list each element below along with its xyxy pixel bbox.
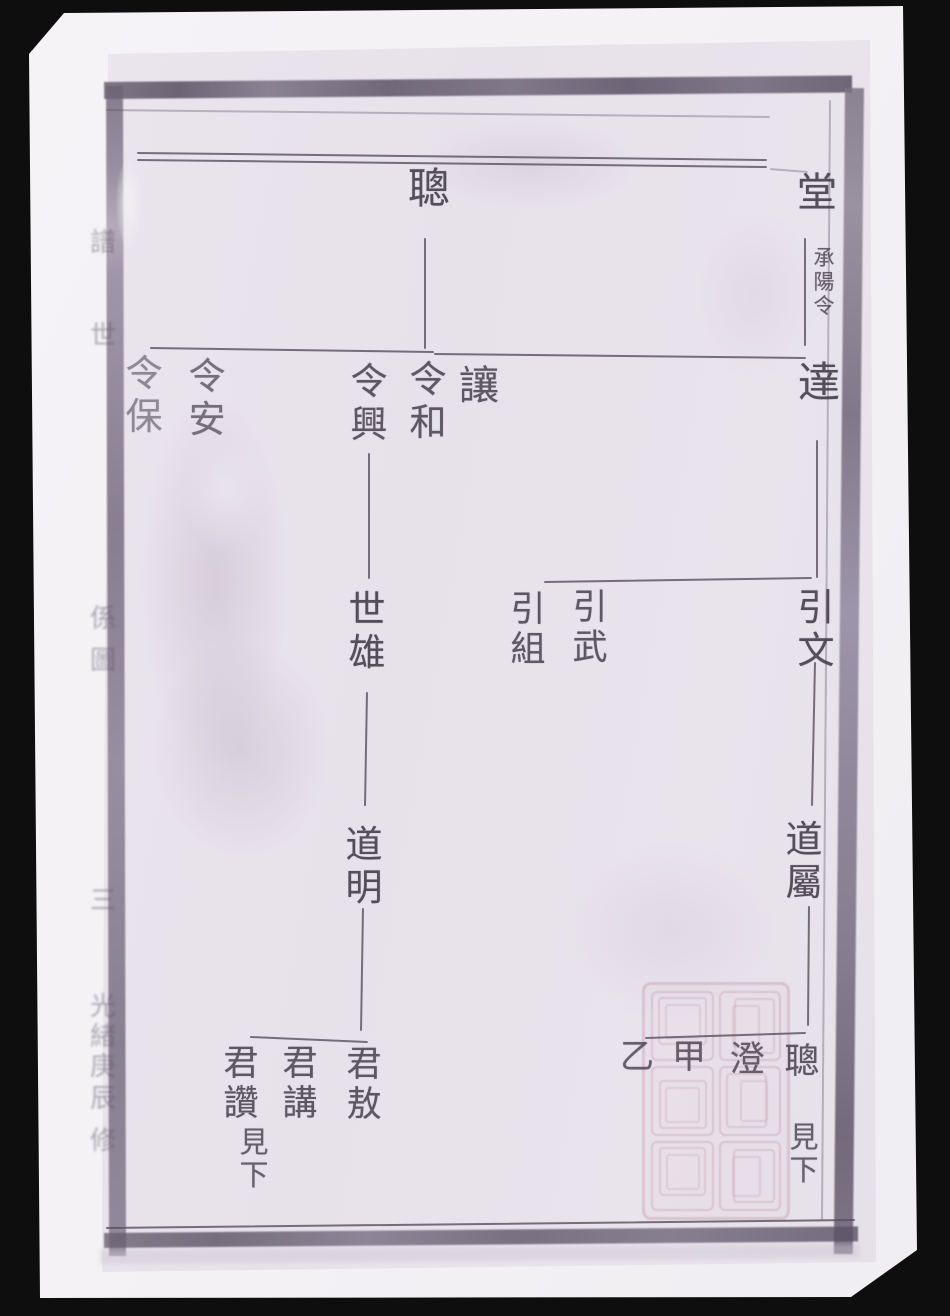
tree-node-cheng: 澄 bbox=[728, 1040, 766, 1080]
seal-glyph-cell bbox=[719, 1141, 782, 1211]
tree-node-yi: 乙 bbox=[619, 1038, 655, 1077]
tree-node-jun-zan: 君讚 bbox=[222, 1044, 260, 1125]
tree-node-jun-jiang: 君講 bbox=[281, 1044, 319, 1125]
tree-node-dao-shu: 道屬 bbox=[784, 820, 824, 905]
left-edge-partial-char: 譜 bbox=[88, 222, 118, 259]
tree-line-v-lingxing-down bbox=[368, 453, 370, 579]
tree-node-ling-an: 令安 bbox=[187, 357, 227, 442]
tree-node-note-chengyangling: 承陽令 bbox=[812, 246, 836, 318]
tree-node-see-below-left: 見下 bbox=[238, 1127, 270, 1194]
tree-node-rang: 讓 bbox=[458, 363, 500, 409]
tree-node-tang: 堂 bbox=[795, 170, 839, 216]
tree-node-ling-bao: 令保 bbox=[124, 354, 164, 439]
tree-node-ling-he: 令和 bbox=[408, 360, 448, 445]
tree-node-yin-zu: 引組 bbox=[509, 590, 547, 671]
scan-background: 聰堂承陽令達讓令和令興令安令保引文引武引組世雄道明道屬君敖君講君讚見下聰澄甲乙見… bbox=[0, 0, 950, 1316]
tree-node-yin-wen: 引文 bbox=[796, 588, 836, 673]
tree-line-v-cong-top bbox=[424, 238, 426, 349]
tree-node-ling-xing: 令興 bbox=[349, 362, 389, 447]
tree-node-cong-bottom: 聰 bbox=[783, 1042, 821, 1082]
left-edge-partial-char: 修 bbox=[88, 1120, 118, 1157]
tree-node-shi-xiong: 世雄 bbox=[347, 590, 387, 675]
tree-node-da: 達 bbox=[796, 360, 842, 408]
left-edge-partial-char: 圖 bbox=[88, 640, 118, 677]
tree-line-v-tang-da bbox=[804, 238, 806, 346]
red-seal-stamp bbox=[642, 982, 790, 1220]
tree-node-dao-ming: 道明 bbox=[344, 825, 384, 910]
tree-node-cong-top: 聰 bbox=[406, 166, 452, 214]
tree-node-see-below-right: 見下 bbox=[788, 1122, 820, 1189]
left-edge-partial-char: 辰 bbox=[88, 1078, 118, 1115]
left-edge-partial-char: 係 bbox=[88, 598, 118, 635]
tree-node-yin-wu: 引武 bbox=[571, 588, 609, 669]
left-edge-partial-char: 三 bbox=[88, 880, 118, 917]
seal-glyph-cell bbox=[651, 1141, 714, 1211]
tree-node-jun-ao: 君敖 bbox=[345, 1045, 383, 1126]
tree-node-jia: 甲 bbox=[671, 1038, 707, 1077]
tree-line-v-da-down bbox=[816, 440, 818, 578]
left-edge-partial-char: 世 bbox=[88, 315, 118, 352]
